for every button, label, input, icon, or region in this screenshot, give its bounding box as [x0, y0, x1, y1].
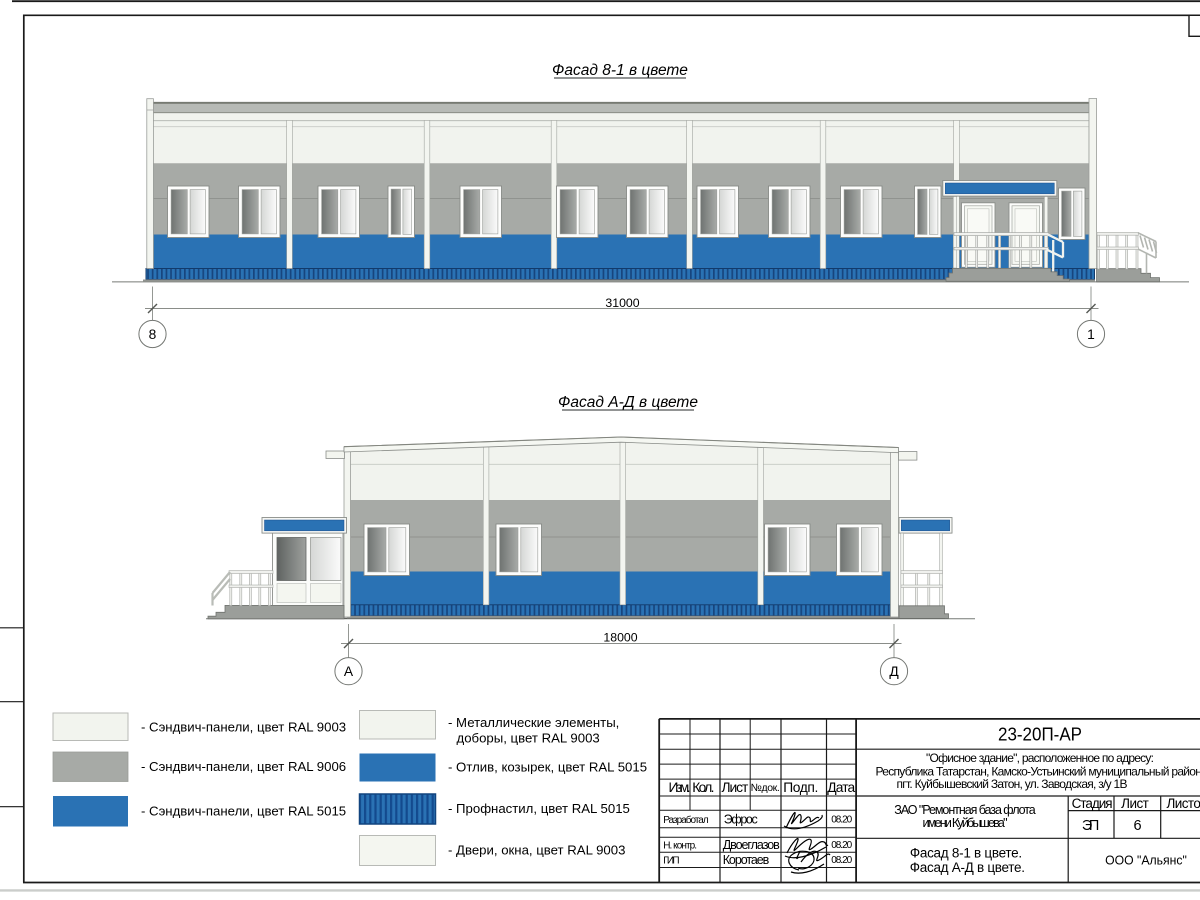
- svg-text:пгт. Куйбышевский Затон, ул. З: пгт. Куйбышевский Затон, ул. Заводская, …: [897, 777, 1128, 791]
- svg-text:08.20: 08.20: [831, 815, 852, 826]
- svg-text:"Офисное здание", расположенно: "Офисное здание", расположенное по адрес…: [926, 751, 1154, 765]
- svg-text:Подп.: Подп.: [783, 780, 818, 795]
- svg-text:- Металлические элементы,: - Металлические элементы,: [448, 715, 619, 730]
- svg-text:Д: Д: [889, 664, 899, 679]
- svg-text:Дата: Дата: [827, 780, 855, 795]
- svg-text:Стадия: Стадия: [1072, 796, 1113, 811]
- svg-text:Фасад 8-1 в цвете: Фасад 8-1 в цвете: [552, 62, 688, 79]
- svg-text:Эфрос: Эфрос: [724, 813, 758, 827]
- svg-text:18000: 18000: [603, 631, 637, 645]
- svg-text:6: 6: [1133, 818, 1141, 834]
- svg-text:Лист: Лист: [1121, 796, 1149, 811]
- svg-text:23-20П-АР: 23-20П-АР: [998, 725, 1082, 745]
- svg-text:Кол.: Кол.: [692, 780, 714, 795]
- svg-text:- Профнастил, цвет RAL 5015: - Профнастил, цвет RAL 5015: [448, 801, 630, 816]
- svg-text:Коротаев: Коротаев: [723, 853, 770, 867]
- svg-text:А: А: [344, 664, 354, 679]
- svg-text:ЭП: ЭП: [1082, 818, 1100, 834]
- svg-text:Лист: Лист: [722, 780, 749, 795]
- svg-text:ЗАО "Ремонтная база флота: ЗАО "Ремонтная база флота: [894, 803, 1036, 817]
- svg-text:Разработал: Разработал: [663, 814, 709, 826]
- svg-text:доборы, цвет RAL 9003: доборы, цвет RAL 9003: [457, 731, 600, 746]
- svg-text:Листов: Листов: [1167, 796, 1200, 811]
- svg-text:Фасад А-Д в цвете.: Фасад А-Д в цвете.: [910, 860, 1025, 875]
- svg-text:Изм.: Изм.: [669, 780, 691, 795]
- svg-text:имени Куйбышева": имени Куйбышева": [923, 816, 1008, 830]
- svg-text:- Сэндвич-панели, цвет RAL 501: - Сэндвич-панели, цвет RAL 5015: [141, 804, 346, 819]
- svg-text:Фасад 8-1 в цвете.: Фасад 8-1 в цвете.: [910, 846, 1022, 861]
- svg-text:- Отлив, козырек, цвет RAL 501: - Отлив, козырек, цвет RAL 5015: [448, 760, 647, 775]
- svg-text:- Сэндвич-панели, цвет RAL 900: - Сэндвич-панели, цвет RAL 9006: [141, 759, 346, 774]
- svg-text:- Двери, окна, цвет RAL 9003: - Двери, окна, цвет RAL 9003: [448, 843, 625, 858]
- svg-text:Двоеглазов: Двоеглазов: [723, 838, 780, 852]
- svg-text:ООО "Альянс": ООО "Альянс": [1105, 853, 1187, 868]
- svg-text:Н. контр.: Н. контр.: [663, 841, 697, 852]
- svg-text:8: 8: [149, 327, 157, 342]
- svg-text:31000: 31000: [605, 296, 639, 310]
- svg-text:08.20: 08.20: [831, 840, 852, 851]
- svg-text:1: 1: [1087, 327, 1095, 342]
- svg-text:- Сэндвич-панели, цвет RAL 900: - Сэндвич-панели, цвет RAL 9003: [141, 720, 346, 735]
- svg-text:08.20: 08.20: [831, 855, 852, 866]
- svg-text:ГИП: ГИП: [663, 856, 679, 867]
- svg-text:№док.: №док.: [751, 782, 780, 794]
- svg-text:Фасад А-Д в цвете: Фасад А-Д в цвете: [558, 394, 698, 411]
